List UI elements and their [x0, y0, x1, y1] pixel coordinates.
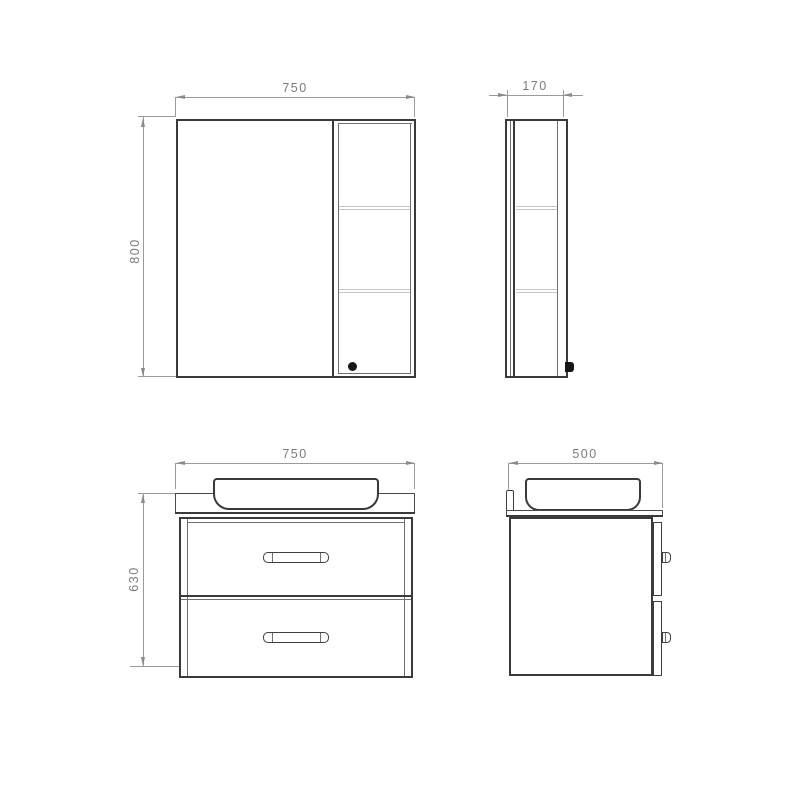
arrow-down-icon	[141, 368, 145, 377]
arrow-up-icon	[141, 494, 145, 503]
vanity-body-side-outline	[509, 517, 653, 676]
handle-post-line	[272, 553, 273, 562]
mirror-door-knob-side	[565, 362, 574, 372]
drawer-front-profile-top	[653, 522, 662, 596]
mirror-front-width-extension-left	[175, 97, 176, 117]
handle-post-line	[320, 633, 321, 642]
shelf-line	[516, 209, 557, 210]
vanity-front-height-dimension-line	[143, 493, 144, 666]
shelf-line	[516, 289, 557, 290]
vanity-side-depth-extension-left	[508, 463, 509, 490]
mirror-front-width-extension-right	[414, 97, 415, 117]
handle-post-line	[665, 633, 666, 642]
mirror-door-edge-line	[332, 121, 334, 376]
drawer-divider-line	[181, 595, 411, 597]
drawer-handle-side-top	[662, 552, 671, 563]
vanity-body-front-outline	[179, 517, 413, 678]
mirror-door-knob	[348, 362, 357, 371]
handle-post-line	[665, 553, 666, 562]
vanity-front-width-label: 750	[273, 447, 317, 461]
arrow-left-icon	[176, 95, 185, 99]
mirror-side-depth-label: 170	[513, 79, 557, 93]
mirror-cabinet-front-outline	[176, 119, 416, 378]
vanity-front-height-label: 630	[127, 557, 141, 601]
mirror-door-profile-edge	[513, 121, 515, 376]
drawer-front-profile-bottom	[653, 601, 662, 676]
shelf-line	[339, 289, 410, 290]
technical-drawing-canvas: 750 800 170 750 630	[0, 0, 800, 800]
vanity-side-depth-extension-right	[662, 463, 663, 508]
arrow-up-icon	[141, 118, 145, 127]
shelf-unit-inner-left-line	[338, 123, 339, 374]
arrow-right-icon	[654, 461, 663, 465]
shelf-line	[516, 292, 557, 293]
mirror-front-width-label: 750	[273, 81, 317, 95]
vanity-right-panel-line	[404, 519, 405, 676]
mirror-door-profile-line	[510, 121, 511, 376]
arrow-right-icon	[406, 95, 415, 99]
shelf-line	[339, 209, 410, 210]
shelf-line	[339, 206, 410, 207]
vessel-basin-side	[525, 478, 641, 511]
shelf-unit-inner-bottom-line	[338, 373, 411, 374]
handle-post-line	[272, 633, 273, 642]
arrow-left-icon	[176, 461, 185, 465]
vanity-front-width-extension-right	[414, 463, 415, 489]
drawer-top-edge-line	[188, 522, 404, 523]
vessel-basin-front	[213, 478, 379, 510]
mirror-front-width-dimension-line	[175, 97, 415, 98]
vanity-countertop-bottom-edge	[175, 512, 415, 514]
shelf-unit-inner-top-line	[338, 123, 412, 124]
arrow-down-icon	[141, 657, 145, 666]
shelf-line	[339, 292, 410, 293]
handle-post-line	[320, 553, 321, 562]
shelf-unit-inner-right-line	[410, 123, 411, 374]
mirror-side-depth-extension-left	[507, 90, 508, 117]
drawer-handle-side-bottom	[662, 632, 671, 643]
vanity-front-width-dimension-line	[175, 463, 415, 464]
shelf-line	[516, 206, 557, 207]
drawer-divider-line-secondary	[181, 599, 411, 600]
arrow-left-icon	[563, 93, 572, 97]
arrow-left-icon	[509, 461, 518, 465]
vanity-side-depth-label: 500	[563, 447, 607, 461]
arrow-right-icon	[406, 461, 415, 465]
mirror-front-height-label: 800	[128, 229, 142, 273]
vanity-side-depth-dimension-line	[508, 463, 663, 464]
vanity-left-panel-line	[187, 519, 188, 676]
mirror-front-height-dimension-line	[143, 117, 144, 377]
cabinet-back-inner-line	[557, 121, 558, 376]
vanity-front-width-extension-left	[175, 463, 176, 489]
arrow-right-icon	[498, 93, 507, 97]
